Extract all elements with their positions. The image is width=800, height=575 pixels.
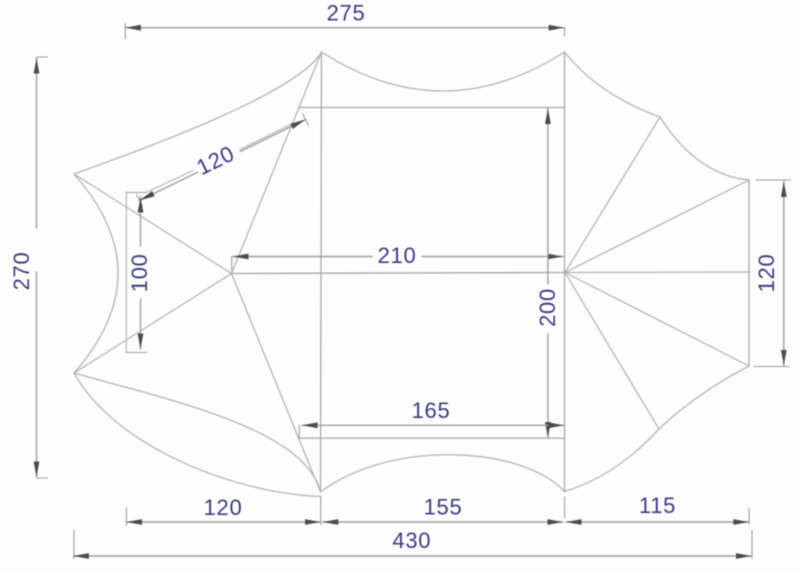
- svg-text:115: 115: [639, 493, 676, 518]
- svg-text:120: 120: [204, 495, 243, 520]
- svg-text:270: 270: [9, 252, 34, 291]
- svg-text:430: 430: [392, 528, 431, 553]
- svg-text:155: 155: [424, 495, 463, 520]
- svg-text:165: 165: [412, 398, 451, 423]
- svg-text:100: 100: [127, 253, 152, 292]
- svg-text:275: 275: [327, 1, 366, 26]
- svg-text:200: 200: [535, 288, 560, 327]
- svg-text:210: 210: [378, 243, 417, 268]
- svg-text:120: 120: [754, 254, 779, 293]
- svg-text:120: 120: [193, 141, 239, 181]
